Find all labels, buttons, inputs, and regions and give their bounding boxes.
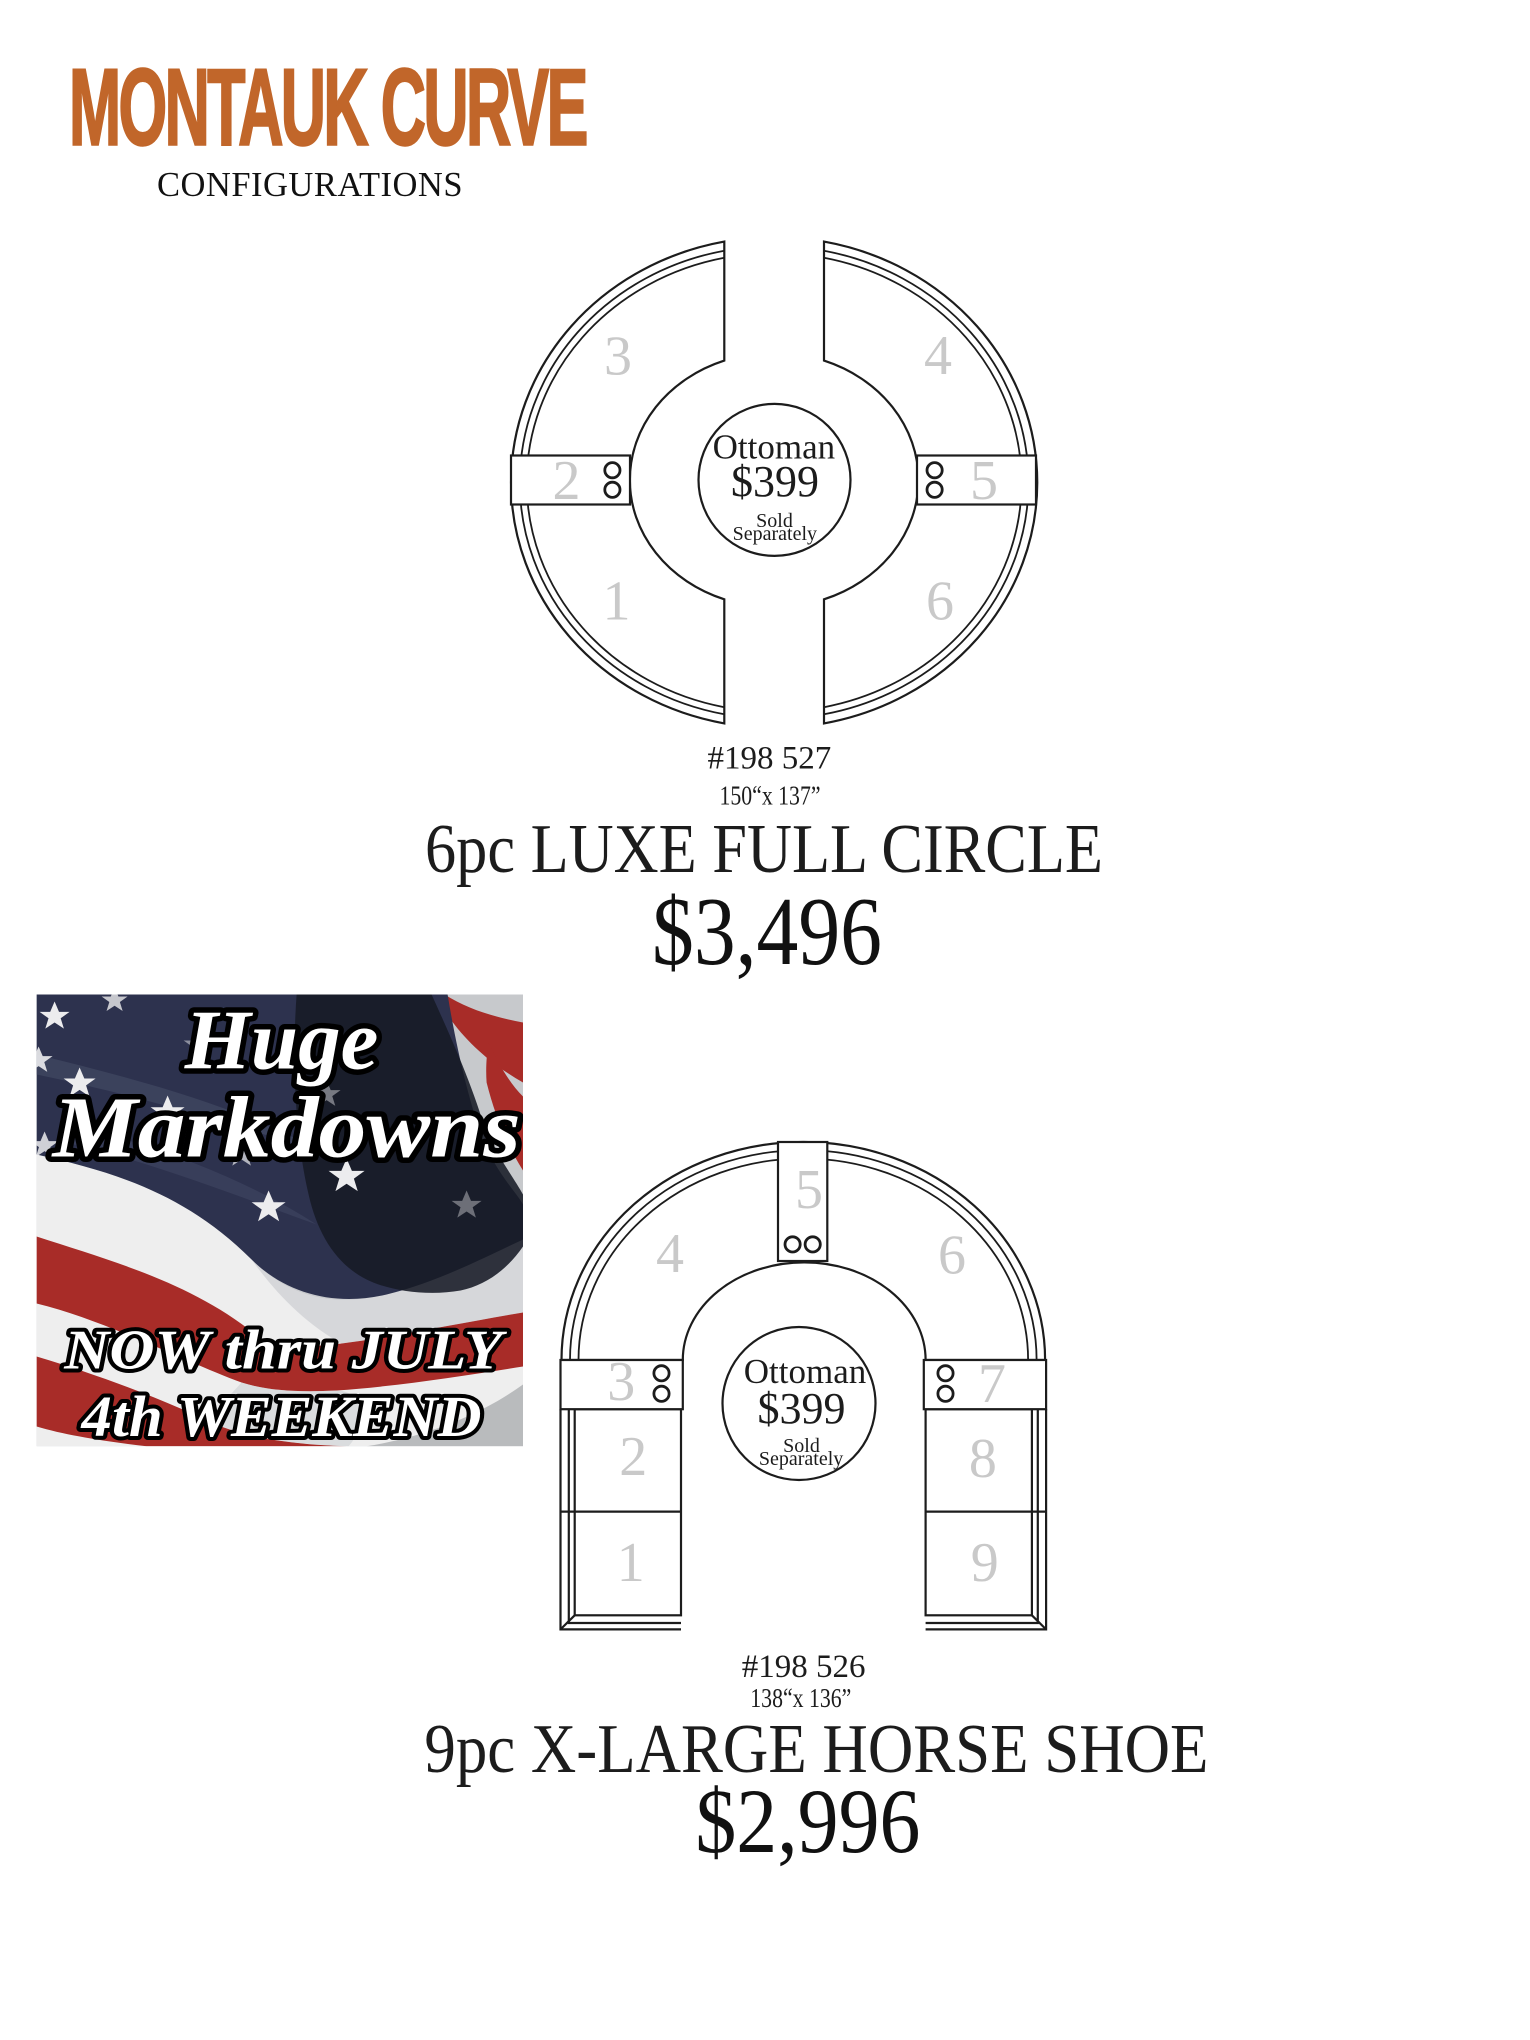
svg-text:Separately: Separately <box>733 523 817 545</box>
svg-text:2: 2 <box>553 450 581 512</box>
svg-text:6pc LUXE FULL CIRCLE: 6pc LUXE FULL CIRCLE <box>425 811 1103 888</box>
svg-text:#198 527: #198 527 <box>708 741 832 777</box>
svg-text:5: 5 <box>970 450 998 512</box>
svg-text:NOW thru JULY: NOW thru JULY <box>63 1319 507 1381</box>
svg-text:$3,496: $3,496 <box>652 878 882 986</box>
svg-text:Markdowns: Markdowns <box>50 1079 520 1176</box>
svg-text:1: 1 <box>617 1532 645 1594</box>
svg-text:1: 1 <box>603 571 631 633</box>
svg-text:4: 4 <box>924 325 952 387</box>
svg-text:6: 6 <box>926 571 954 633</box>
svg-text:4th WEEKEND: 4th WEEKEND <box>80 1384 481 1449</box>
svg-text:5: 5 <box>795 1159 823 1221</box>
svg-text:CONFIGURATIONS: CONFIGURATIONS <box>157 166 463 204</box>
svg-text:3: 3 <box>604 326 632 388</box>
svg-text:2: 2 <box>619 1426 647 1488</box>
svg-text:3: 3 <box>607 1351 635 1413</box>
svg-text:138“x 136”: 138“x 136” <box>750 1683 851 1713</box>
svg-text:7: 7 <box>978 1353 1006 1415</box>
svg-text:#198 526: #198 526 <box>742 1649 866 1685</box>
svg-text:$399: $399 <box>731 457 819 506</box>
svg-text:8: 8 <box>969 1428 997 1490</box>
svg-text:$399: $399 <box>758 1384 846 1433</box>
svg-text:9: 9 <box>971 1532 999 1594</box>
svg-text:150“x 137”: 150“x 137” <box>720 781 821 811</box>
svg-text:Huge: Huge <box>184 993 379 1087</box>
svg-text:6: 6 <box>938 1225 966 1287</box>
svg-text:$2,996: $2,996 <box>695 1770 920 1872</box>
svg-text:4: 4 <box>656 1223 684 1285</box>
svg-text:MONTAUK CURVE: MONTAUK CURVE <box>69 46 586 167</box>
svg-text:Separately: Separately <box>759 1448 843 1470</box>
